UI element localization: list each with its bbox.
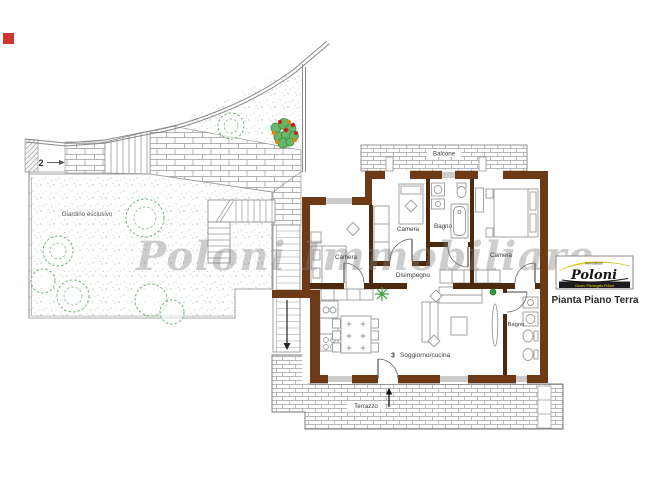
tree-icon <box>160 300 184 324</box>
dining-table <box>341 316 371 353</box>
coffee-table <box>451 317 467 335</box>
tree-icon <box>31 269 55 293</box>
terrace-steps <box>538 386 551 428</box>
sink-basin <box>323 307 329 313</box>
stove-burner <box>324 338 329 343</box>
marker-2-label: 2 <box>38 158 43 168</box>
plan-caption: Pianta Piano Terra <box>551 295 639 306</box>
marker-2-leader <box>47 160 65 165</box>
soggiorno-label: Soggiorno/cucina <box>400 352 451 359</box>
bagno-lower-label: Bagno <box>508 322 525 328</box>
logo-tagline: Immobiliare <box>585 262 603 266</box>
garden-steps <box>105 131 150 174</box>
bagno-top-label: Bagno <box>434 223 452 230</box>
soggiorno-number: 3 <box>391 351 395 360</box>
red-marker-icon <box>3 33 14 44</box>
camera-right-label: Camera <box>490 252 513 259</box>
terrazzo-label: Terrazzo <box>354 403 378 410</box>
floorplan-page: Poloni Immobiliare Balcone Camera Camera… <box>0 0 667 500</box>
radiator <box>492 304 498 346</box>
boundary-hatch-strip <box>25 139 38 172</box>
nightstand <box>486 189 493 198</box>
logo-panel: Immobiliare Poloni Geom. Pierangelo Polo… <box>551 256 639 306</box>
toilet <box>534 331 538 341</box>
floorplan-drawing: Poloni Immobiliare Balcone Camera Camera… <box>0 0 667 500</box>
disimpegno-label: Disimpegno <box>396 272 431 279</box>
garden-label: Giardino esclusivo <box>62 211 113 218</box>
bidet <box>534 350 538 359</box>
balcone-label: Balcone <box>433 151 456 158</box>
plant-icon <box>490 289 496 295</box>
plant-icon <box>375 287 389 301</box>
dresser <box>476 188 484 212</box>
balcony-door-leaf <box>386 157 393 171</box>
brick-path-left <box>65 142 105 173</box>
balcony-door-leaf <box>479 157 486 171</box>
logo-subtext: Geom. Pierangelo Poloni <box>575 284 614 288</box>
camera-mid-label: Camera <box>397 226 420 233</box>
watermark-text: Poloni Immobiliare <box>135 233 595 280</box>
camera-left-label: Camera <box>335 254 358 261</box>
